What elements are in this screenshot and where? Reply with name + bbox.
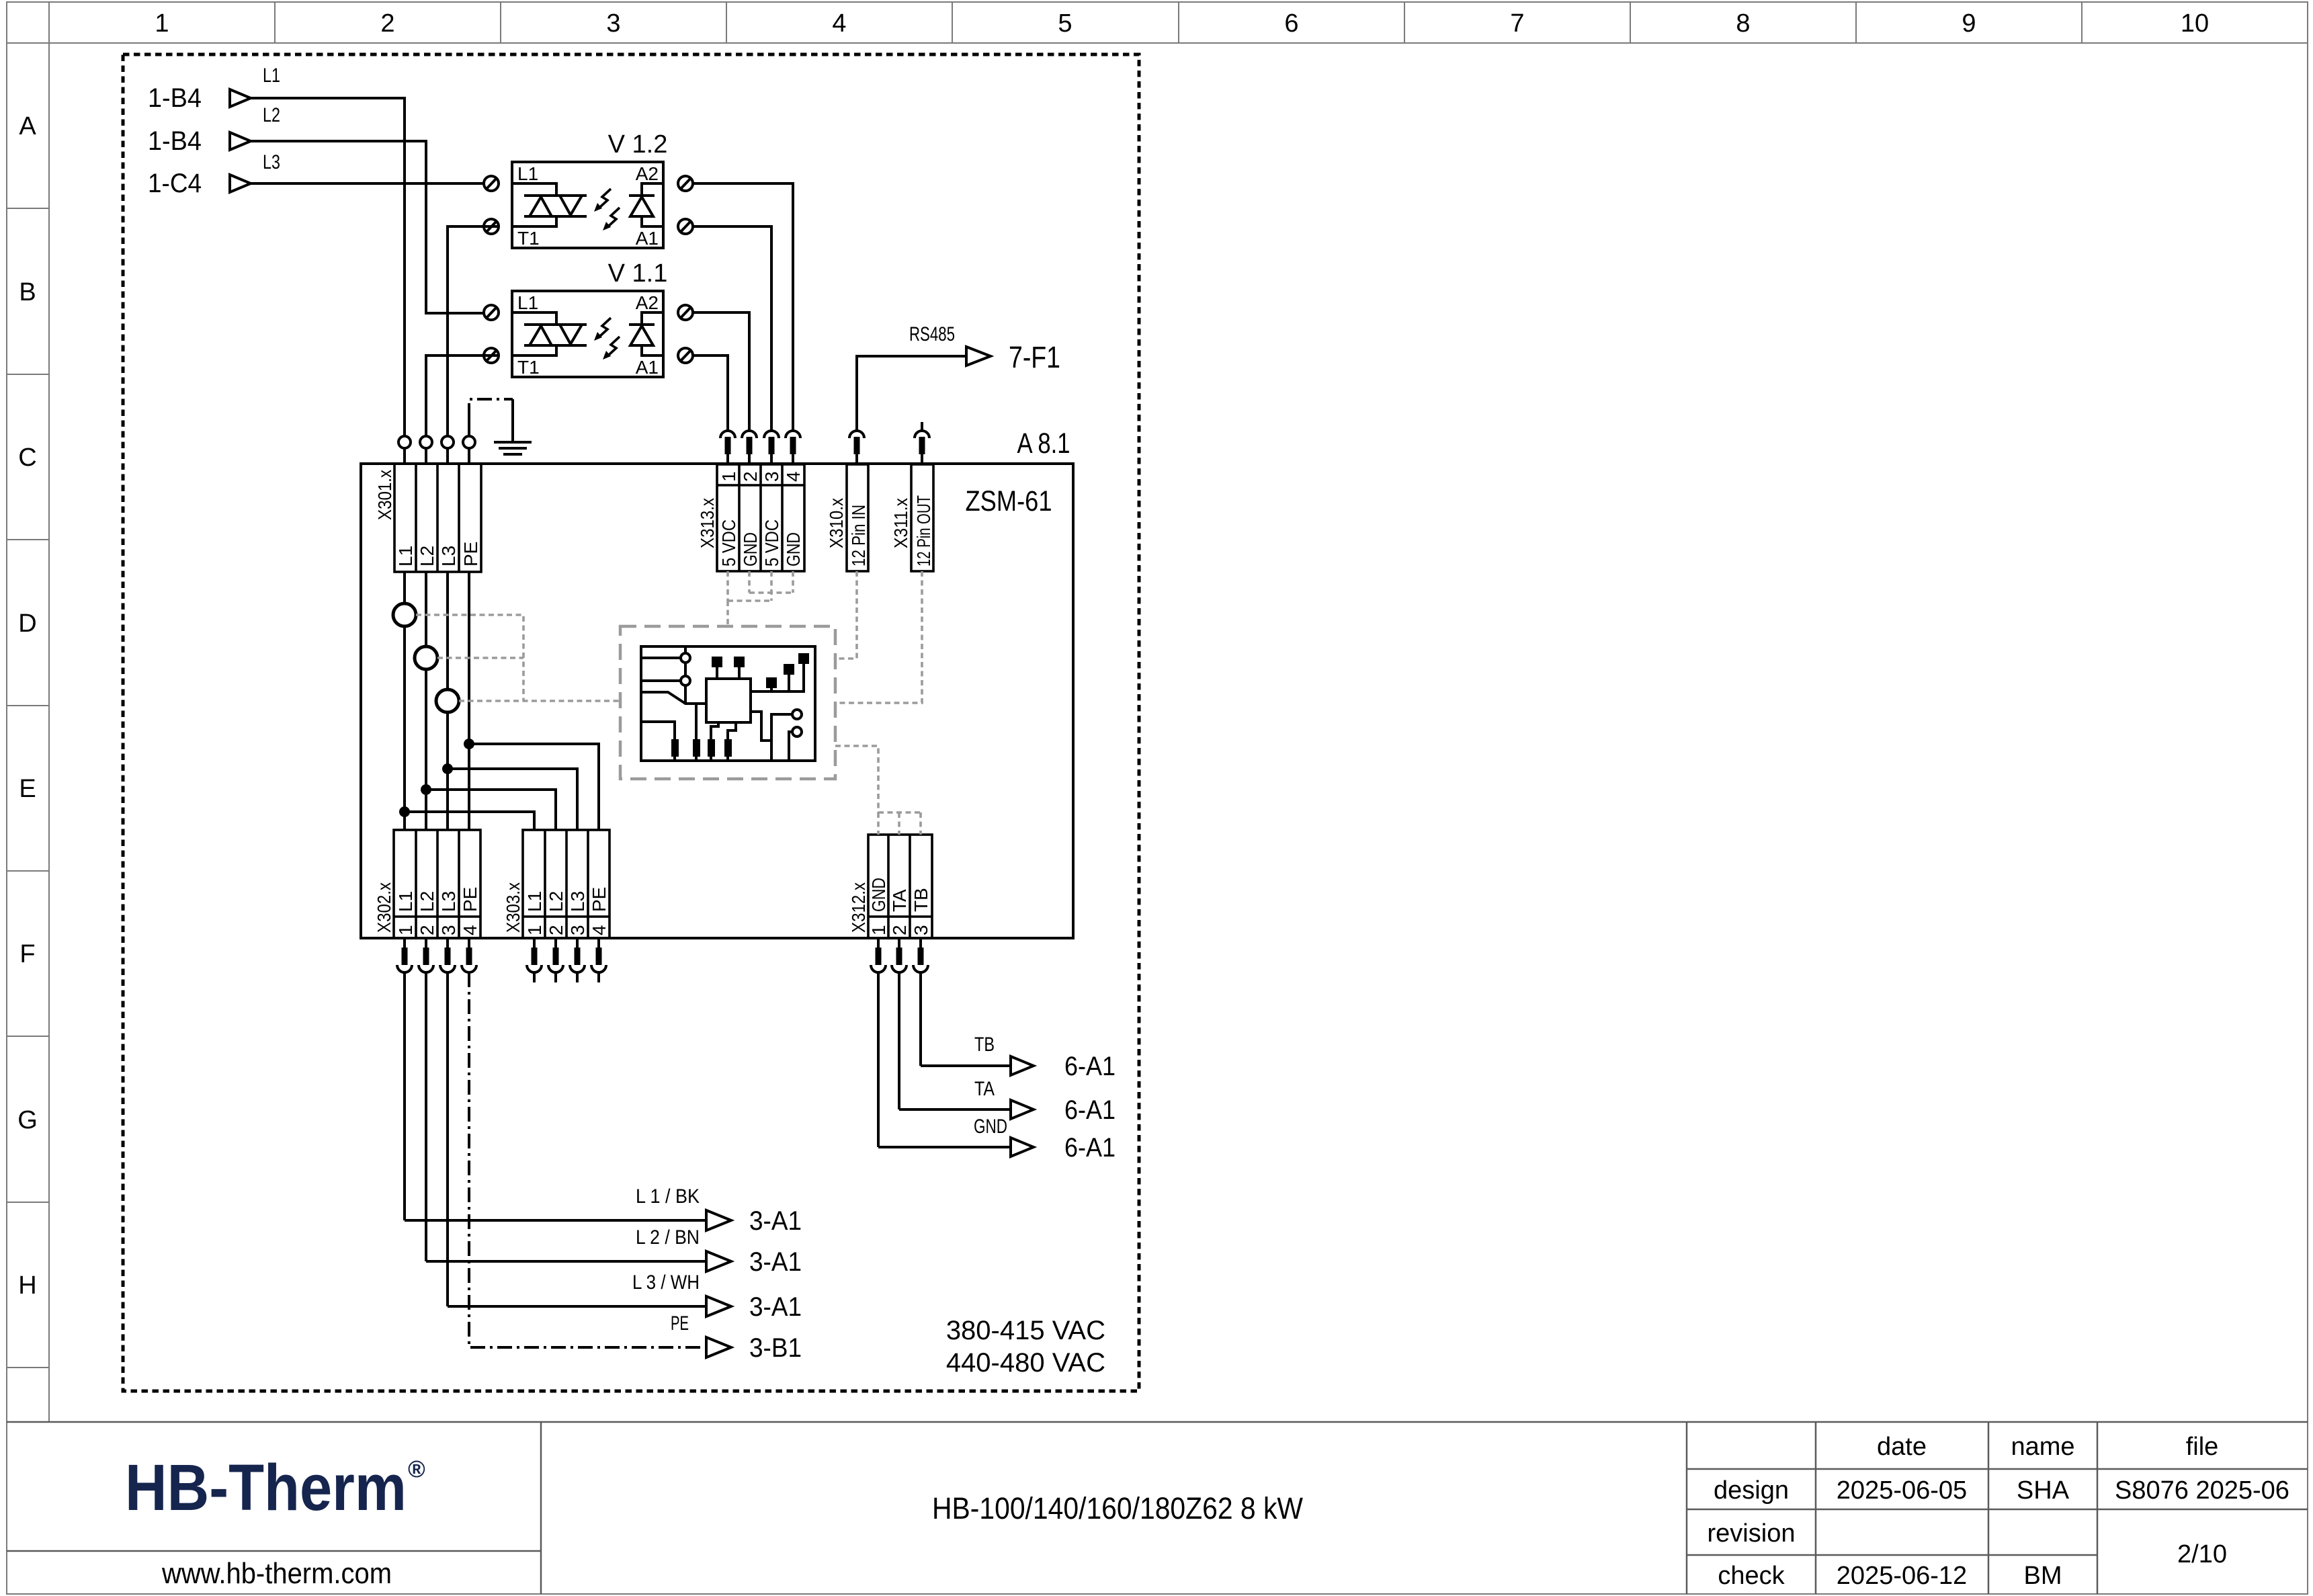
svg-text:X301.x: X301.x bbox=[374, 470, 395, 520]
svg-text:V 1.2: V 1.2 bbox=[608, 130, 668, 159]
svg-text:1: 1 bbox=[524, 925, 545, 935]
svg-text:HB-Therm: HB-Therm bbox=[125, 1451, 407, 1524]
svg-text:3-A1: 3-A1 bbox=[749, 1247, 802, 1277]
svg-text:HB-100/140/160/180Z62 8 kW: HB-100/140/160/180Z62 8 kW bbox=[932, 1491, 1303, 1525]
svg-text:3: 3 bbox=[911, 925, 931, 935]
svg-text:A2: A2 bbox=[636, 292, 659, 313]
svg-text:3: 3 bbox=[606, 9, 620, 38]
svg-text:2: 2 bbox=[740, 471, 761, 482]
svg-text:PE: PE bbox=[460, 542, 481, 566]
svg-text:RS485: RS485 bbox=[909, 323, 955, 345]
svg-text:check: check bbox=[1718, 1562, 1785, 1590]
svg-text:L 1 / BK: L 1 / BK bbox=[636, 1185, 700, 1208]
svg-text:date: date bbox=[1877, 1433, 1927, 1461]
svg-text:1: 1 bbox=[395, 925, 416, 935]
svg-text:2/10: 2/10 bbox=[2177, 1540, 2227, 1568]
svg-text:A 8.1: A 8.1 bbox=[1017, 427, 1070, 460]
svg-text:5 VDC: 5 VDC bbox=[718, 519, 739, 566]
svg-text:PE: PE bbox=[671, 1312, 689, 1335]
svg-text:L 3 / WH: L 3 / WH bbox=[632, 1271, 700, 1294]
svg-text:TB: TB bbox=[911, 888, 931, 912]
svg-text:G: G bbox=[17, 1106, 38, 1134]
svg-text:8: 8 bbox=[1736, 9, 1750, 38]
svg-text:V 1.1: V 1.1 bbox=[608, 259, 668, 288]
svg-text:4: 4 bbox=[589, 925, 609, 935]
svg-text:L2: L2 bbox=[417, 891, 437, 912]
svg-text:GND: GND bbox=[740, 532, 761, 566]
svg-text:X303.x: X303.x bbox=[503, 882, 523, 933]
svg-text:1: 1 bbox=[718, 471, 739, 482]
svg-text:revision: revision bbox=[1708, 1519, 1796, 1548]
svg-text:2: 2 bbox=[546, 925, 566, 935]
svg-text:L1: L1 bbox=[524, 891, 545, 912]
svg-text:design: design bbox=[1714, 1476, 1789, 1505]
svg-text:7: 7 bbox=[1510, 9, 1524, 38]
svg-text:3: 3 bbox=[438, 925, 459, 935]
svg-text:TB: TB bbox=[974, 1034, 995, 1056]
svg-text:2025-06-12: 2025-06-12 bbox=[1837, 1562, 1967, 1590]
svg-text:10: 10 bbox=[2181, 9, 2209, 38]
svg-text:S8076 2025-06: S8076 2025-06 bbox=[2115, 1476, 2289, 1505]
svg-text:TA: TA bbox=[974, 1078, 995, 1100]
svg-text:X313.x: X313.x bbox=[697, 498, 718, 548]
svg-text:www.hb-therm.com: www.hb-therm.com bbox=[161, 1557, 392, 1590]
svg-text:7-F1: 7-F1 bbox=[1009, 340, 1060, 374]
svg-text:3: 3 bbox=[567, 925, 588, 935]
svg-text:L2: L2 bbox=[263, 104, 280, 126]
svg-text:1-C4: 1-C4 bbox=[148, 169, 202, 198]
svg-text:GND: GND bbox=[974, 1116, 1007, 1138]
svg-text:X311.x: X311.x bbox=[890, 498, 911, 548]
svg-text:X310.x: X310.x bbox=[826, 498, 847, 548]
svg-text:2: 2 bbox=[889, 925, 910, 935]
svg-text:12 Pin IN: 12 Pin IN bbox=[848, 505, 869, 566]
svg-text:PE: PE bbox=[589, 887, 609, 912]
svg-text:L3: L3 bbox=[438, 546, 459, 566]
svg-text:X312.x: X312.x bbox=[848, 882, 869, 933]
svg-text:6-A1: 6-A1 bbox=[1064, 1095, 1116, 1125]
svg-text:5 VDC: 5 VDC bbox=[761, 519, 782, 566]
svg-text:A2: A2 bbox=[636, 163, 659, 184]
svg-text:380-415 VAC: 380-415 VAC bbox=[946, 1316, 1105, 1345]
svg-text:L1: L1 bbox=[263, 65, 280, 87]
svg-text:file: file bbox=[2186, 1433, 2219, 1461]
svg-text:GND: GND bbox=[868, 878, 889, 912]
svg-text:1-B4: 1-B4 bbox=[148, 83, 202, 113]
svg-text:L1: L1 bbox=[395, 891, 416, 912]
svg-text:T1: T1 bbox=[517, 228, 540, 249]
svg-text:L1: L1 bbox=[517, 292, 538, 313]
svg-text:6: 6 bbox=[1284, 9, 1298, 38]
svg-text:T1: T1 bbox=[517, 357, 540, 378]
svg-text:3: 3 bbox=[761, 471, 782, 482]
svg-text:440-480 VAC: 440-480 VAC bbox=[946, 1348, 1105, 1378]
svg-text:1: 1 bbox=[155, 9, 169, 38]
svg-text:ZSM-61: ZSM-61 bbox=[966, 485, 1052, 517]
svg-text:PE: PE bbox=[460, 887, 480, 912]
svg-text:A: A bbox=[19, 112, 36, 140]
svg-text:6-A1: 6-A1 bbox=[1064, 1052, 1116, 1081]
svg-text:9: 9 bbox=[1962, 9, 1976, 38]
svg-text:E: E bbox=[19, 775, 36, 803]
svg-text:B: B bbox=[19, 278, 36, 306]
svg-text:L3: L3 bbox=[567, 891, 588, 912]
svg-text:2: 2 bbox=[417, 925, 437, 935]
svg-text:2: 2 bbox=[380, 9, 394, 38]
svg-text:3-B1: 3-B1 bbox=[749, 1333, 802, 1363]
svg-text:L3: L3 bbox=[438, 891, 459, 912]
svg-text:D: D bbox=[18, 610, 36, 638]
svg-text:L 2 / BN: L 2 / BN bbox=[636, 1226, 700, 1249]
svg-text:2025-06-05: 2025-06-05 bbox=[1837, 1476, 1967, 1505]
svg-text:X302.x: X302.x bbox=[374, 882, 394, 933]
svg-text:3-A1: 3-A1 bbox=[749, 1292, 802, 1322]
svg-text:1: 1 bbox=[868, 925, 889, 935]
svg-text:1-B4: 1-B4 bbox=[148, 126, 202, 156]
svg-text:TA: TA bbox=[889, 889, 910, 912]
svg-text:5: 5 bbox=[1058, 9, 1072, 38]
svg-text:SHA: SHA bbox=[2017, 1476, 2070, 1505]
svg-text:4: 4 bbox=[832, 9, 846, 38]
svg-text:3-A1: 3-A1 bbox=[749, 1206, 802, 1236]
svg-text:L1: L1 bbox=[395, 546, 416, 566]
svg-text:BM: BM bbox=[2024, 1562, 2062, 1590]
svg-text:®: ® bbox=[408, 1456, 425, 1482]
svg-text:L2: L2 bbox=[417, 546, 437, 566]
svg-text:A1: A1 bbox=[636, 228, 659, 249]
svg-text:F: F bbox=[19, 940, 35, 968]
svg-text:12 Pin OUT: 12 Pin OUT bbox=[913, 495, 934, 566]
svg-text:name: name bbox=[2011, 1433, 2074, 1461]
svg-text:C: C bbox=[18, 444, 36, 472]
svg-text:6-A1: 6-A1 bbox=[1064, 1133, 1116, 1163]
svg-text:L1: L1 bbox=[517, 163, 538, 184]
svg-text:4: 4 bbox=[460, 925, 480, 935]
svg-text:A1: A1 bbox=[636, 357, 659, 378]
svg-text:4: 4 bbox=[783, 471, 804, 482]
svg-text:L3: L3 bbox=[263, 151, 280, 173]
svg-text:H: H bbox=[18, 1271, 36, 1300]
svg-text:GND: GND bbox=[783, 532, 804, 566]
svg-text:L2: L2 bbox=[546, 891, 566, 912]
